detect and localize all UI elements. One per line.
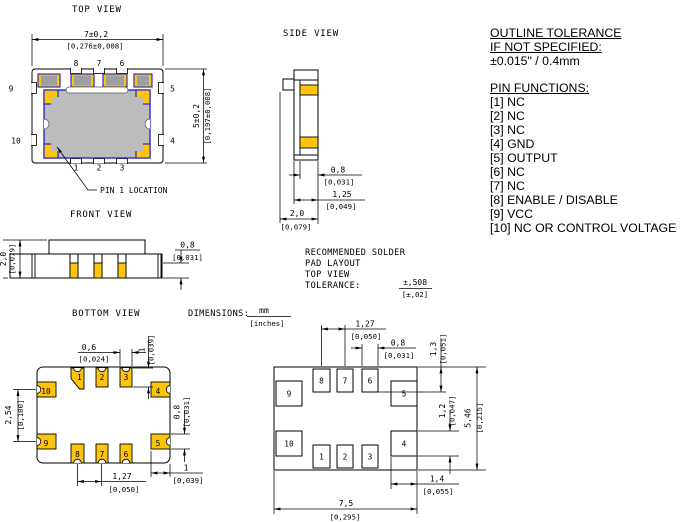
pin-number: 8 (74, 59, 79, 68)
dim-pad-height-in: [0,031] (172, 253, 203, 262)
solder-tolerance-in: [±,02] (402, 290, 428, 299)
pin-number: 9 (287, 390, 292, 399)
pin-number: 2 (97, 164, 102, 173)
pin-number: 3 (120, 164, 125, 173)
dim-width-mm: 7,5 (339, 499, 354, 508)
dim-pad-height-mm: 0,8 (331, 166, 346, 175)
dim-top-row-mm: 1,3 (429, 342, 438, 357)
pin-number: 2 (100, 373, 105, 382)
pin-number: 1 (77, 373, 82, 382)
dim-lid-in: [0,049] (326, 202, 357, 211)
dim-pad-height-mm: 0,8 (180, 241, 195, 250)
dimensions-label: DIMENSIONS: (188, 309, 249, 319)
pin-number: 5 (402, 390, 407, 399)
front-view: FRONT VIEW 2,0 [0,079] 0,8 [0,031] (0, 210, 203, 290)
resonator-body (44, 87, 150, 158)
outline-tolerance-title-line2: IF NOT SPECIFIED: (490, 40, 688, 54)
front-view-pad (70, 263, 78, 278)
dimensions-mm: mm (259, 306, 269, 315)
side-view-dimensions: 0,8 [0,031] 1,25 [0,049] 2,0 [0,079] (280, 92, 365, 232)
notes-panel: OUTLINE TOLERANCE IF NOT SPECIFIED: ±0.0… (490, 26, 688, 235)
pin-function-item: [7] NC (490, 179, 688, 193)
pin-number: 8 (75, 450, 80, 459)
pin1-location-label: PIN 1 LOCATION (100, 186, 168, 195)
dim-side-pitch-in: [0,100] (16, 400, 25, 431)
front-view-pad (94, 263, 102, 278)
pin-function-item: [8] ENABLE / DISABLE (490, 193, 688, 207)
dimensions-inches: [inches] (249, 319, 284, 328)
bottom-view: BOTTOM VIEW 1 2 3 (4, 309, 203, 494)
dim-depth-mm: 2,0 (290, 209, 305, 218)
dim-corner-pad-mm: 1,4 (430, 475, 445, 484)
pin-function-item: [10] NC OR CONTROL VOLTAGE (490, 221, 688, 235)
pin-number: 8 (319, 377, 324, 386)
pin-number: 7 (97, 59, 102, 68)
dim-depth-in: [0,079] (281, 223, 312, 232)
pin-number: 6 (124, 450, 129, 459)
dim-lid-mm: 1,25 (332, 190, 351, 199)
pin-number: 1 (319, 453, 324, 462)
dim-side-pad-width-mm: 1 (184, 464, 189, 473)
pin-functions-title: PIN FUNCTIONS: (490, 81, 688, 95)
pin-function-item: [2] NC (490, 109, 688, 123)
side-view: SIDE VIEW 0,8 [0,031] 1,25 [0,049] 2,0 [… (280, 29, 365, 232)
solder-title-line2: PAD LAYOUT (305, 259, 361, 269)
pin-number: 3 (124, 373, 129, 382)
pin-function-item: [1] NC (490, 95, 688, 109)
outline-tolerance-value: ±0.015" / 0.4mm (490, 54, 688, 68)
pin-number: 10 (41, 387, 51, 396)
side-view-pad-lower (300, 137, 318, 148)
dim-pad-width-in: [0,024] (79, 355, 110, 364)
dim-side-pad-height-in: [0,031] (182, 397, 191, 428)
solder-tolerance-mm: ±,508 (403, 278, 427, 287)
solder-title-line1: RECOMMENDED SOLDER (305, 248, 406, 258)
pin-number: 7 (343, 377, 348, 386)
pin-number: 9 (44, 439, 49, 448)
dim-height-in: [0,079] (8, 244, 17, 275)
pin-number: 2 (343, 453, 348, 462)
top-view: TOP VIEW (9, 5, 212, 195)
dim-pitch-in: [0,050] (109, 485, 140, 494)
dim-pad-height-in: [0,031] (324, 178, 355, 187)
solder-tolerance-label: TOLERANCE: (305, 281, 361, 291)
pin-number: 6 (120, 59, 125, 68)
pin-function-item: [6] NC (490, 165, 688, 179)
pin-function-item: [5] OUTPUT (490, 151, 688, 165)
pin-number: 3 (368, 453, 373, 462)
dim-side-pad-width-in: [0,039] (173, 476, 204, 485)
pin-number: 10 (284, 440, 294, 449)
pin-number: 7 (100, 450, 105, 459)
side-view-lid-tab (283, 79, 294, 90)
pin-number: 9 (9, 85, 14, 94)
dim-pad-width-mm: 0,6 (82, 343, 97, 352)
dim-height-mm: 5,46 (464, 408, 473, 427)
top-view-title: TOP VIEW (72, 5, 122, 15)
side-view-title: SIDE VIEW (283, 29, 339, 39)
dim-height-in: [0,197±0,008] (203, 87, 212, 144)
dim-corner-pad-in: [0,055] (423, 487, 454, 496)
dim-pitch-in: [0,050] (351, 332, 382, 341)
front-view-lid (49, 240, 145, 254)
dim-pitch-mm: 1,27 (112, 472, 131, 481)
dim-top-row-in: [0,051] (439, 334, 448, 365)
datasheet-drawing: TOP VIEW (0, 0, 688, 522)
pin-number: 6 (368, 377, 373, 386)
pin-number: 10 (11, 137, 21, 146)
dimensions-note: DIMENSIONS: mm [inches] (188, 306, 291, 328)
dim-side-pad-height-mm: 0,8 (173, 405, 182, 420)
dim-width-in: [0,295] (330, 513, 361, 522)
outline-tolerance-title-line1: OUTLINE TOLERANCE (490, 26, 688, 40)
pin-number: 5 (156, 439, 161, 448)
pin-function-item: [4] GND (490, 137, 688, 151)
dim-width-mm: 7±0,2 (84, 30, 108, 39)
front-view-body (10, 254, 162, 278)
solder-pad-layout: RECOMMENDED SOLDER PAD LAYOUT TOP VIEW T… (274, 248, 486, 522)
lid-seam (66, 87, 128, 93)
dim-pitch-mm: 1,27 (355, 320, 374, 329)
side-view-pad-upper (300, 85, 318, 95)
pin-number: 5 (170, 85, 175, 94)
pin-function-item: [9] VCC (490, 207, 688, 221)
dim-side-pitch-mm: 2,54 (4, 405, 13, 424)
dim-pad-width-mm: 0,8 (391, 339, 406, 348)
dim-side-pad-in: [0,047] (448, 396, 457, 427)
pin-number: 4 (156, 387, 161, 396)
dim-width-in: [0,276±0,008] (66, 42, 123, 51)
dim-pad-length-mm: 1 (138, 347, 147, 352)
dim-side-pad-mm: 1,2 (438, 404, 447, 419)
dim-height-mm: 5±0,2 (192, 104, 201, 128)
pin-number: 4 (170, 137, 175, 146)
bottom-view-title: BOTTOM VIEW (72, 309, 140, 319)
front-view-pad (118, 263, 126, 278)
pin-number: 4 (402, 440, 407, 449)
dim-pad-width-in: [0,031] (384, 351, 415, 360)
front-view-title: FRONT VIEW (70, 210, 132, 220)
dim-height-in: [0,215] (475, 403, 484, 434)
pin-function-item: [3] NC (490, 123, 688, 137)
dim-pad-length-in: [0,039] (147, 335, 156, 366)
solder-title-line3: TOP VIEW (305, 270, 350, 280)
